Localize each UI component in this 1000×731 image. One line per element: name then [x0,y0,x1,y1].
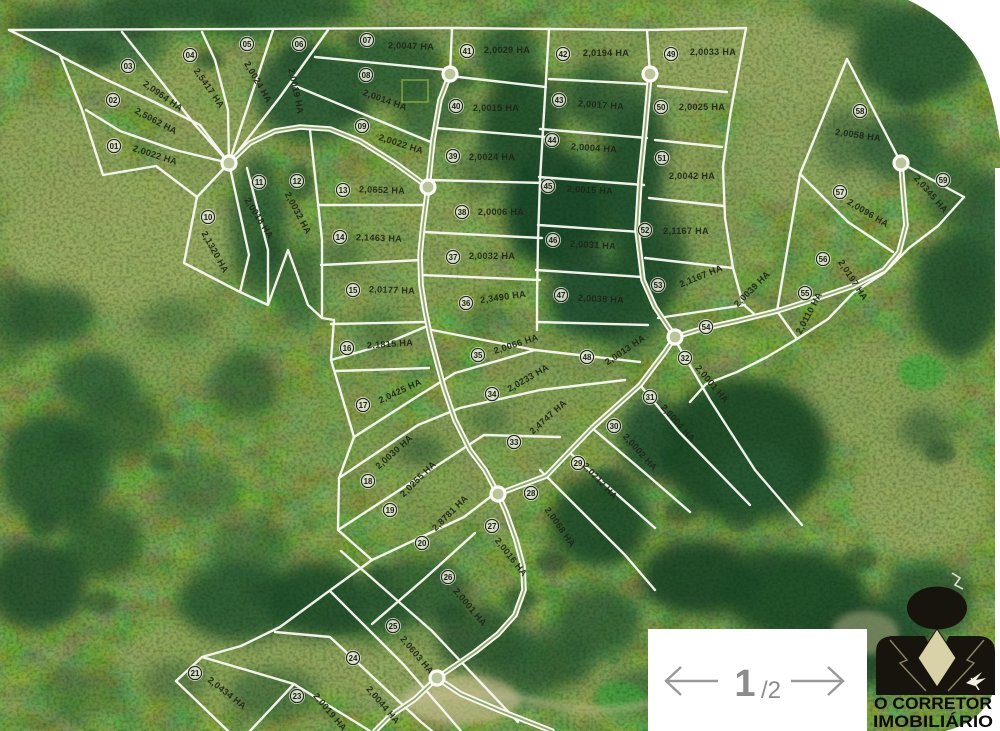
svg-text:41: 41 [463,47,472,56]
svg-text:2,0006 HA: 2,0006 HA [478,207,524,217]
svg-text:16: 16 [343,344,352,353]
svg-text:54: 54 [702,323,711,332]
svg-text:15: 15 [349,286,358,295]
svg-text:2,0033 HA: 2,0033 HA [690,47,736,57]
svg-text:42: 42 [559,50,568,59]
svg-text:50: 50 [657,103,666,112]
svg-text:01: 01 [110,142,119,151]
svg-text:58: 58 [856,107,865,116]
svg-text:53: 53 [654,281,663,290]
svg-text:48: 48 [583,353,592,362]
svg-text:05: 05 [243,40,252,49]
svg-text:O CORRETOR: O CORRETOR [874,694,992,713]
svg-text:27: 27 [488,522,497,531]
svg-text:34: 34 [488,390,497,399]
svg-text:37: 37 [449,253,458,262]
svg-text:2,0177 HA: 2,0177 HA [369,284,416,296]
svg-text:31: 31 [646,393,655,402]
svg-text:39: 39 [449,152,458,161]
svg-text:46: 46 [549,236,558,245]
svg-text:36: 36 [462,299,471,308]
svg-text:2,0029 HA: 2,0029 HA [484,45,530,55]
svg-text:40: 40 [452,102,461,111]
svg-text:10: 10 [204,213,213,222]
svg-text:2,0032 HA: 2,0032 HA [469,251,515,261]
svg-text:19: 19 [386,506,395,515]
svg-text:44: 44 [548,136,557,145]
svg-text:28: 28 [527,489,536,498]
svg-text:06: 06 [295,40,304,49]
svg-text:30: 30 [610,422,619,431]
svg-text:59: 59 [939,176,948,185]
svg-text:12: 12 [293,177,302,186]
svg-text:17: 17 [359,401,368,410]
svg-text:33: 33 [510,438,519,447]
svg-text:35: 35 [474,351,483,360]
svg-text:52: 52 [641,226,650,235]
svg-text:49: 49 [667,50,676,59]
svg-text:07: 07 [363,36,372,45]
svg-text:02: 02 [109,96,118,105]
svg-text:24: 24 [349,654,358,663]
svg-text:IMOBILIÁRIO: IMOBILIÁRIO [873,712,993,731]
svg-text:2,1463 HA: 2,1463 HA [356,232,403,244]
svg-text:08: 08 [362,71,371,80]
svg-text:09: 09 [358,122,367,131]
svg-text:03: 03 [124,62,133,71]
svg-text:04: 04 [186,51,195,60]
svg-text:57: 57 [836,188,845,197]
svg-text:18: 18 [364,477,373,486]
svg-text:/2: /2 [761,677,781,704]
svg-text:2,0024 HA: 2,0024 HA [469,152,515,162]
svg-text:55: 55 [801,289,810,298]
svg-text:43: 43 [555,96,564,105]
svg-text:2,0194 HA: 2,0194 HA [583,48,629,58]
svg-text:2,0042 HA: 2,0042 HA [669,171,715,181]
svg-text:32: 32 [681,354,690,363]
svg-text:56: 56 [819,255,828,264]
svg-text:13: 13 [339,186,348,195]
svg-text:47: 47 [557,291,566,300]
svg-text:38: 38 [458,208,467,217]
svg-text:2,0047 HA: 2,0047 HA [388,40,435,52]
svg-text:21: 21 [191,669,200,678]
svg-text:2,1167 HA: 2,1167 HA [663,226,709,236]
svg-text:25: 25 [389,622,398,631]
svg-text:20: 20 [418,539,427,548]
svg-text:2,0015 HA: 2,0015 HA [473,103,519,113]
svg-text:2,0025 HA: 2,0025 HA [679,102,725,112]
svg-text:2,0652 HA: 2,0652 HA [359,184,406,196]
svg-text:45: 45 [544,182,553,191]
svg-text:26: 26 [444,573,453,582]
svg-text:11: 11 [255,178,264,187]
svg-text:14: 14 [336,233,345,242]
svg-text:23: 23 [293,692,302,701]
svg-text:51: 51 [658,154,667,163]
svg-text:1: 1 [734,663,755,705]
